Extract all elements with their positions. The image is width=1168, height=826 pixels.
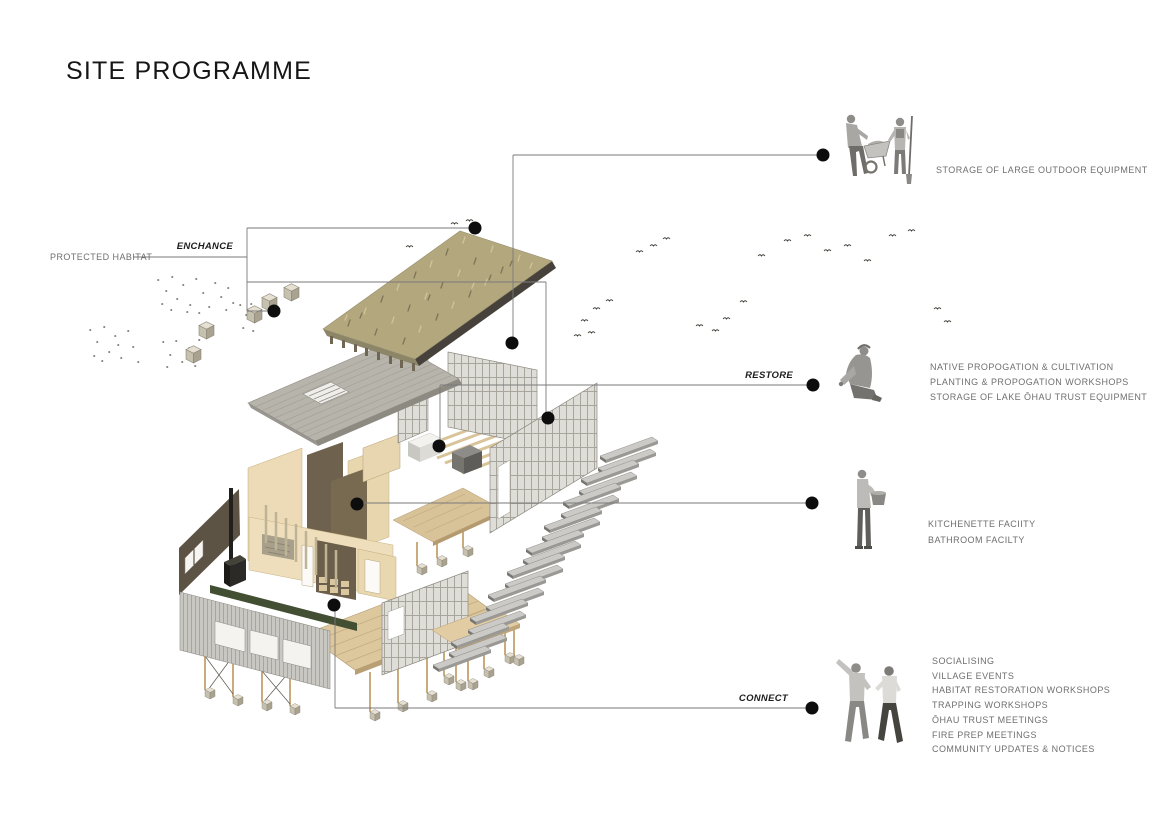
label-line: BATHROOM FACILTY — [928, 532, 1036, 548]
figure-kneeling-planter — [839, 345, 882, 402]
figure-two-people-talking — [836, 659, 903, 743]
enhance-verb-label: ENCHANCE — [158, 241, 233, 252]
callout-dot — [328, 599, 341, 612]
figure-person-with-pot — [855, 470, 886, 549]
label-line: NATIVE PROPOGATION & CULTIVATION — [930, 360, 1147, 375]
callout-dot — [351, 498, 364, 511]
connect-verb-label: CONNECT — [726, 693, 788, 704]
label-line: FIRE PREP MEETINGS — [932, 728, 1110, 743]
figure-gardeners-wheelbarrow — [846, 115, 912, 184]
label-line: PLANTING & PROPOGATION WORKSHOPS — [930, 375, 1147, 390]
dark-feature-wall — [179, 488, 246, 595]
bee-swarm — [90, 277, 299, 367]
label-line: HABITAT RESTORATION WORKSHOPS — [932, 683, 1110, 698]
connect-label-list: SOCIALISING VILLAGE EVENTS HABITAT RESTO… — [932, 654, 1110, 757]
cabin-lower-level — [179, 434, 524, 721]
facilities-label-list: KITCHENETTE FACIITY BATHROOM FACILTY — [928, 516, 1036, 548]
label-line: VILLAGE EVENTS — [932, 669, 1110, 684]
callout-dot — [268, 305, 281, 318]
callout-dot — [817, 149, 830, 162]
label-line: COMMUNITY UPDATES & NOTICES — [932, 742, 1110, 757]
restore-verb-label: RESTORE — [733, 370, 793, 381]
label-line: SOCIALISING — [932, 654, 1110, 669]
label-line: ŌHAU TRUST MEETINGS — [932, 713, 1110, 728]
label-line: KITCHENETTE FACIITY — [928, 516, 1036, 532]
callout-dot — [806, 702, 819, 715]
interior-walls — [248, 434, 400, 601]
kitchen-floor — [393, 488, 503, 546]
callout-dot — [807, 379, 820, 392]
callout-dot — [806, 497, 819, 510]
label-line: STORAGE OF LAKE ŌHAU TRUST EQUIPMENT — [930, 390, 1147, 405]
callout-dot — [506, 337, 519, 350]
site-programme-diagram: SITE PROGRAMME PROTECTED HABITAT ENCHANC… — [0, 0, 1168, 826]
callout-dot — [433, 440, 446, 453]
callout-dot — [469, 222, 482, 235]
restore-label-list: NATIVE PROPOGATION & CULTIVATION PLANTIN… — [930, 360, 1147, 405]
storage-label: STORAGE OF LARGE OUTDOOR EQUIPMENT — [936, 165, 1148, 175]
label-line: TRAPPING WORKSHOPS — [932, 698, 1110, 713]
callout-dot — [542, 412, 555, 425]
protected-habitat-label: PROTECTED HABITAT — [50, 252, 152, 262]
page-title: SITE PROGRAMME — [66, 57, 312, 86]
grass-roof — [323, 231, 556, 371]
insect-hotel-boxes — [186, 284, 299, 363]
